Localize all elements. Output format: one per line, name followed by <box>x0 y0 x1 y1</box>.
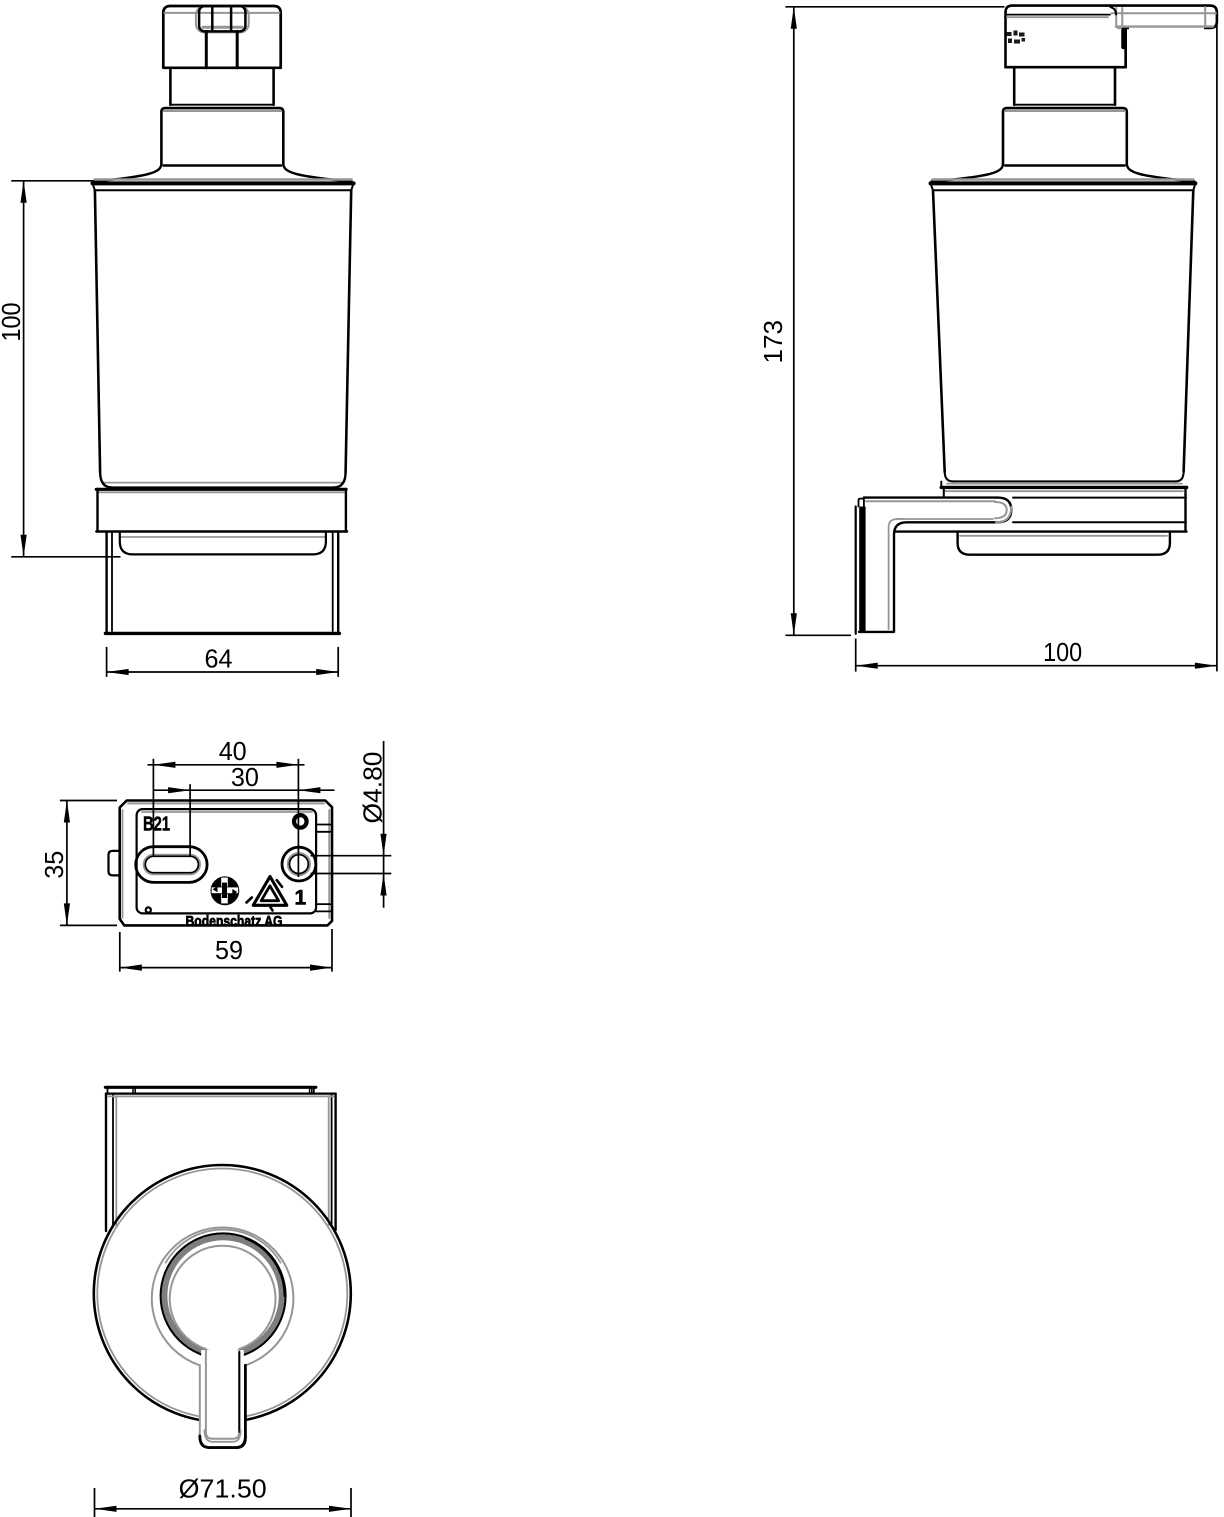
svg-text:100: 100 <box>1043 637 1082 667</box>
svg-text:30: 30 <box>231 762 259 792</box>
svg-text:Ø71.50: Ø71.50 <box>179 1473 267 1503</box>
svg-text:1: 1 <box>295 887 307 910</box>
svg-text:64: 64 <box>205 643 233 673</box>
svg-text:Bodenschatz AG: Bodenschatz AG <box>186 914 283 930</box>
svg-text:Ø4.80: Ø4.80 <box>357 752 387 824</box>
svg-text:B21: B21 <box>143 813 170 836</box>
svg-text:100: 100 <box>0 303 26 342</box>
svg-text:35: 35 <box>39 851 69 879</box>
svg-text:59: 59 <box>215 935 243 965</box>
svg-text:173: 173 <box>758 320 788 364</box>
